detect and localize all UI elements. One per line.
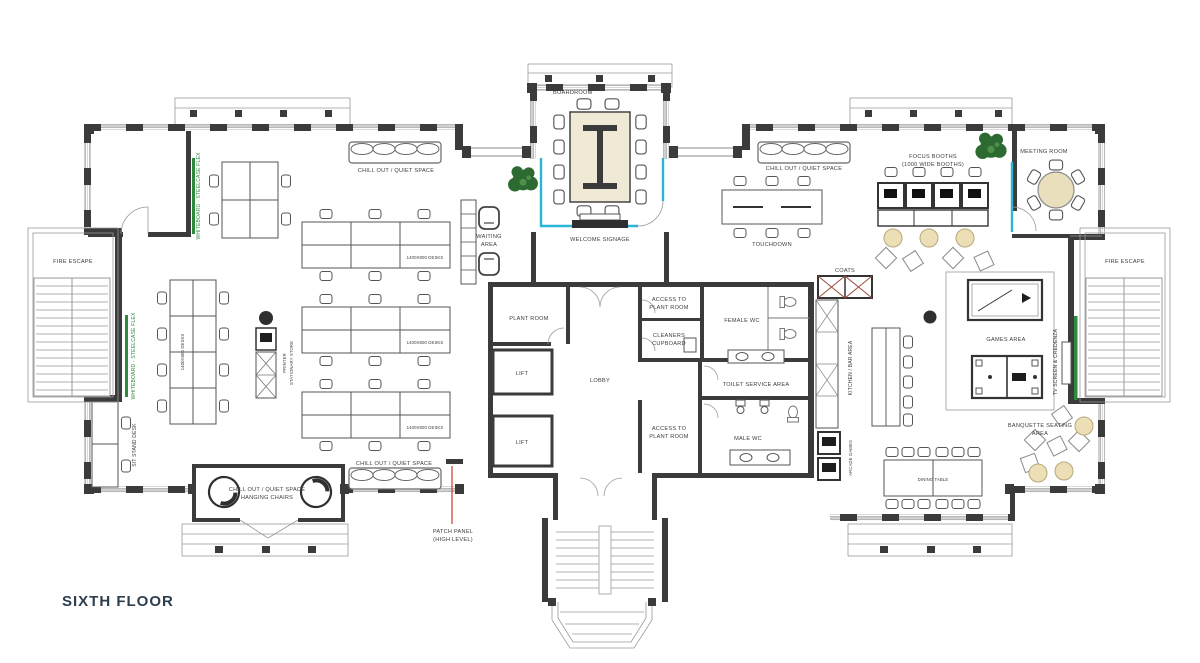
dining-table-label: DINING TABLE [918, 477, 949, 482]
chill-out-label-right: CHILL OUT / QUIET SPACE [766, 166, 842, 172]
waiting-label-1: WAITING [476, 234, 501, 240]
chill-out-label-bottom: CHILL OUT / QUIET SPACE [356, 461, 432, 467]
meeting-room-label: MEETING ROOM [1020, 149, 1068, 155]
desk-bank-3: 1400X800 DESKS [302, 380, 450, 451]
desk-bank-3-label: 1400X800 DESKS [407, 425, 444, 430]
touchdown-label: TOUCHDOWN [752, 242, 792, 248]
access-top-label-2: PLANT ROOM [649, 305, 688, 311]
whiteboard-label-2: WHITEBOARD - STEELCASE FLEX [131, 312, 137, 400]
meeting-room [1012, 160, 1102, 238]
male-wc-label: MALE WC [734, 436, 762, 442]
tv-credenza-label: TV SCREEN & CREDENZA [1053, 328, 1059, 395]
tree-icon [508, 166, 538, 191]
lobby-label: LOBBY [590, 378, 610, 384]
lift-1-label: LIFT [516, 371, 529, 377]
desk-bank-vertical: 1400X800 DESKS [158, 280, 229, 424]
arcade-games-label: ARCADE GAMES [848, 440, 853, 476]
focus-booths-label-2: (1000 WIDE BOOTHS) [902, 162, 964, 168]
desk-bank-v-label: 1400X800 DESKS [180, 334, 185, 371]
chill-out-sofa-top-left [349, 142, 441, 163]
desk-bank-2: 1400X800 DESKS [302, 295, 450, 366]
boardroom-label: BOARDROOM [553, 90, 593, 96]
top-left-room [88, 131, 191, 237]
banquette-label-1: BANQUETTE SEATING [1008, 423, 1072, 429]
access-bottom-label-1: ACCESS TO [652, 426, 687, 432]
fire-escape-right [1080, 228, 1170, 402]
waiting-label-2: AREA [481, 242, 497, 248]
focus-booths-label-1: FOCUS BOOTHS [909, 154, 957, 160]
desk-bank-1-label: 1400X800 DESKS [407, 255, 444, 260]
arcade-machines [818, 432, 840, 480]
cleaners-label-1: CLEANERS [653, 333, 685, 339]
access-top-label-1: ACCESS TO [652, 297, 687, 303]
banquette-label-2: AREA [1032, 431, 1048, 437]
toilet-service-label: TOILET SERVICE AREA [723, 382, 790, 388]
printer-label-1: PRINTER [282, 353, 287, 373]
female-wc-fixtures [728, 287, 810, 363]
sit-stand-desk-label: SIT STAND DESK [132, 423, 138, 467]
lifts [493, 350, 552, 466]
fire-escape-right-label: FIRE ESCAPE [1105, 259, 1145, 265]
desk-bank-2-label: 1400X800 DESKS [407, 340, 444, 345]
page-title: SIXTH FLOOR [62, 593, 174, 610]
focus-booths [875, 168, 997, 275]
stair-tower [542, 518, 668, 648]
hanging-chairs-room [192, 464, 345, 538]
welcome-signage-label: WELCOME SIGNAGE [570, 237, 630, 243]
sit-stand-desk [92, 402, 131, 487]
hanging-chairs-label-1: CHILL OUT / QUIET SPACE [229, 487, 305, 493]
printer-station [256, 311, 276, 398]
patch-panel-label-1: PATCH PANEL [433, 529, 473, 535]
hanging-chairs-label-2: HANGING CHAIRS [241, 495, 293, 501]
cleaners-label-2: CUPBOARD [652, 341, 686, 347]
kitchen-bar [816, 300, 937, 428]
fire-escape-left-label: FIRE ESCAPE [53, 259, 93, 265]
desk-bank-1: 1400X800 DESKS [302, 210, 450, 281]
chill-out-sofa-bottom-left [349, 468, 441, 489]
printer-label-2: STATIONARY STORE [289, 341, 294, 385]
patch-panel-label-2: (HIGH LEVEL) [433, 537, 473, 543]
whiteboard-label-1: WHITEBOARD - STEELCASE FLEX [196, 152, 202, 240]
female-wc-label: FEMALE WC [724, 318, 760, 324]
coats-unit [818, 276, 872, 298]
male-wc-fixtures [730, 400, 799, 465]
access-bottom-label-2: PLANT ROOM [649, 434, 688, 440]
chill-out-sofa-right [758, 133, 1007, 163]
lift-2-label: LIFT [516, 440, 529, 446]
tree-icon [975, 133, 1006, 159]
quad-desk-cluster [210, 162, 291, 238]
touchdown-table [722, 177, 822, 238]
plant-room-label: PLANT ROOM [509, 316, 548, 322]
fire-escape-left [28, 228, 118, 402]
coats-label: COATS [835, 268, 855, 274]
chill-out-label-top-left: CHILL OUT / QUIET SPACE [358, 168, 434, 174]
banquette-seating [1016, 404, 1093, 482]
floor-plan-svg: 1400X800 DESKS 1400X800 DESKS 1400X800 D… [0, 0, 1200, 663]
games-area-label: GAMES AREA [986, 337, 1025, 343]
kitchen-bar-label: KITCHEN / BAR AREA [848, 340, 854, 395]
floor-plan-page: 1400X800 DESKS 1400X800 DESKS 1400X800 D… [0, 0, 1200, 663]
